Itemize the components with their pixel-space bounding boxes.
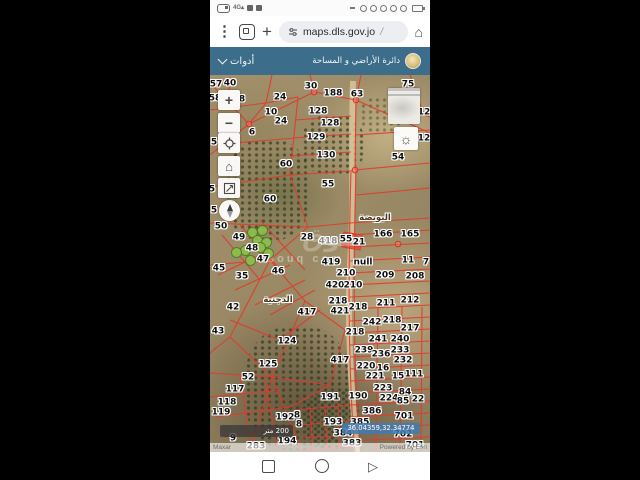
- parcel-label: 5: [211, 207, 217, 216]
- dls-logo-icon: [405, 53, 421, 69]
- parcel-label: 111: [405, 371, 424, 380]
- parcel-label: 117: [226, 386, 245, 395]
- recents-button[interactable]: [262, 460, 275, 473]
- parcel-label: 386: [363, 408, 382, 417]
- url-text: maps.dls.gov.jo: [303, 26, 375, 38]
- parcel-label: 232: [394, 357, 413, 366]
- parcel-label: 48: [246, 245, 259, 254]
- parcel-label: 166: [374, 231, 393, 240]
- parcel-label: 210: [344, 282, 363, 291]
- parcel-label: 30: [305, 83, 318, 92]
- url-suffix: /: [380, 26, 383, 38]
- parcel-label: 125: [259, 361, 278, 370]
- parcel-label: 119: [212, 409, 231, 418]
- green-point-marker[interactable]: [245, 255, 256, 266]
- parcel-label: 55: [340, 236, 353, 245]
- parcel-label: 45: [213, 265, 226, 274]
- parcel-label: 165: [401, 231, 420, 240]
- parcel-label: 210: [337, 270, 356, 279]
- app-header: دائرة الأراضي و المساحة أدوات: [210, 47, 430, 75]
- parcel-label: 54: [392, 154, 405, 163]
- back-button[interactable]: ▷: [368, 460, 378, 473]
- site-brand: دائرة الأراضي و المساحة: [312, 53, 421, 69]
- parcel-label: 11: [402, 257, 415, 266]
- parcel-label: 6: [249, 129, 255, 138]
- tools-label: أدوات: [230, 56, 254, 67]
- parcel-label: 7: [423, 259, 429, 268]
- notification-app-icon: [247, 5, 253, 11]
- parcel-label: 190: [349, 393, 368, 402]
- parcel-label: 55: [322, 181, 335, 190]
- notification-dot-icon: [380, 5, 387, 12]
- battery-icon: [412, 5, 423, 12]
- parcel-label: 418: [319, 238, 338, 247]
- parcel-label: 193: [324, 419, 343, 428]
- attribution-bar: Maxar Powered by Esri: [210, 443, 430, 452]
- browser-toolbar: ⋮ + maps.dls.gov.jo / ⌂: [210, 16, 430, 47]
- parcel-label: 224: [380, 395, 399, 404]
- parcel-label: 208: [406, 273, 425, 282]
- parcel-label: 701: [395, 413, 414, 422]
- site-title: دائرة الأراضي و المساحة: [312, 56, 400, 66]
- tab-switcher-button[interactable]: [239, 24, 255, 40]
- parcel-label: 236: [372, 351, 391, 360]
- parcel-label: 419: [322, 259, 341, 268]
- parcel-label: 49: [233, 234, 246, 243]
- zoom-in-button[interactable]: +: [218, 90, 240, 110]
- green-point-marker[interactable]: [231, 247, 242, 258]
- parcel-label: 124: [278, 338, 297, 347]
- parcel-label: 40: [224, 80, 237, 89]
- parcel-label: 47: [257, 256, 270, 265]
- status-right-icons: [350, 5, 423, 12]
- parcel-label: 417: [298, 309, 317, 318]
- place-label: البويضة: [359, 214, 391, 223]
- parcel-label: 5: [210, 186, 215, 195]
- basemap-thumbnail-image: [388, 88, 420, 124]
- scale-bar: 200 متر: [220, 425, 293, 437]
- parcel-label: 22: [412, 396, 425, 405]
- place-label: الدجنية: [263, 296, 292, 305]
- parcel-label: 60: [264, 196, 277, 205]
- notification-dot-icon: [360, 5, 367, 12]
- parcel-label: 241: [369, 336, 388, 345]
- chevron-down-icon: [218, 55, 228, 65]
- parcel-label: 192: [276, 414, 295, 423]
- parcel-label: 28: [301, 234, 314, 243]
- zoom-out-button[interactable]: −: [218, 113, 240, 133]
- parcel-label: 239: [355, 347, 374, 356]
- browser-home-button[interactable]: ⌂: [415, 25, 423, 39]
- home-icon: ⌂: [225, 159, 233, 174]
- parcel-label: 50: [215, 223, 228, 232]
- parcel-label: 35: [236, 273, 249, 282]
- parcel-label: 188: [324, 90, 343, 99]
- compass-needle-icon: [223, 203, 237, 219]
- home-extent-button[interactable]: ⌂: [218, 156, 240, 176]
- parcel-label: 5: [211, 139, 217, 148]
- parcel-label: null: [354, 259, 373, 268]
- tools-dropdown-button[interactable]: أدوات: [219, 56, 254, 67]
- brightness-toggle-button[interactable]: ☼: [394, 127, 418, 150]
- locate-icon: [223, 137, 236, 150]
- parcel-label: 223: [374, 385, 393, 394]
- parcel-label: 43: [212, 328, 225, 337]
- parcel-label: 233: [391, 347, 410, 356]
- parcel-label: 212: [401, 297, 420, 306]
- parcel-label: 420: [326, 282, 345, 291]
- status-bar: 4G▴: [210, 0, 430, 16]
- parcel-label: 417: [331, 357, 350, 366]
- parcel-label: 24: [275, 118, 288, 127]
- parcel-label: 421: [331, 308, 350, 317]
- notification-dot-icon: [400, 5, 407, 12]
- parcel-label: 240: [391, 336, 410, 345]
- notification-dot-icon: [390, 5, 397, 12]
- compass-button[interactable]: [219, 200, 240, 221]
- phone-screen: 4G▴ ⋮ +: [210, 0, 430, 480]
- parcel-label: 242: [363, 319, 382, 328]
- parcel-label: 221: [366, 373, 385, 382]
- locate-button[interactable]: [218, 133, 240, 153]
- parcel-label: 218: [383, 317, 402, 326]
- parcel-label: 128: [309, 108, 328, 117]
- parcel-label: 191: [321, 394, 340, 403]
- screenshot-stage: 4G▴ ⋮ +: [0, 0, 640, 480]
- parcel-label: 42: [227, 304, 240, 313]
- parcel-label: 218: [346, 329, 365, 338]
- parcel-label: 129: [307, 134, 326, 143]
- notification-app-icon: [256, 5, 262, 11]
- parcel-label: 217: [401, 325, 420, 334]
- signal-4g-icon: 4G▴: [233, 5, 244, 11]
- parcel-label: 57: [210, 81, 222, 90]
- browser-menu-button[interactable]: ⋮: [217, 24, 232, 39]
- parcel-label: 46: [272, 268, 285, 277]
- measure-icon: [223, 182, 236, 195]
- parcel-label: 218: [349, 304, 368, 313]
- parcel-label: 63: [351, 91, 364, 100]
- minus-notification-icon: [350, 7, 355, 9]
- parcel-label: 12: [418, 135, 430, 144]
- measure-button[interactable]: [218, 178, 240, 198]
- basemap-thumbnail[interactable]: [388, 88, 420, 124]
- parcel-label: 211: [377, 300, 396, 309]
- address-bar[interactable]: maps.dls.gov.jo /: [279, 21, 408, 43]
- parcel-label: 85: [397, 398, 410, 407]
- coordinate-readout: 36.04359,32.34774: [342, 423, 420, 434]
- parcel-label: 8: [296, 421, 302, 430]
- parcel-label: 60: [280, 161, 293, 170]
- map-canvas[interactable]: سوق souq com 574030188637558824128101224…: [210, 75, 430, 452]
- parcel-label: 218: [329, 298, 348, 307]
- site-settings-icon: [288, 27, 298, 37]
- android-nav-bar: ▷: [210, 452, 430, 480]
- parcel-label: 128: [321, 120, 340, 129]
- parcel-label: 21: [353, 239, 366, 248]
- new-tab-button[interactable]: +: [262, 23, 272, 40]
- android-home-button[interactable]: [315, 459, 329, 473]
- attribution-esri: Powered by Esri: [380, 444, 427, 451]
- parcel-label: 209: [376, 272, 395, 281]
- parcel-label: 220: [357, 363, 376, 372]
- notification-dot-icon: [370, 5, 377, 12]
- parcel-label: 118: [218, 399, 237, 408]
- parcel-label: 15: [392, 373, 405, 382]
- parcel-label: 52: [242, 374, 255, 383]
- attribution-maxar: Maxar: [213, 444, 231, 451]
- screen-cast-icon: [217, 4, 230, 13]
- parcel-label: 24: [274, 94, 287, 103]
- sun-icon: ☼: [400, 131, 413, 147]
- parcel-label: 130: [317, 152, 336, 161]
